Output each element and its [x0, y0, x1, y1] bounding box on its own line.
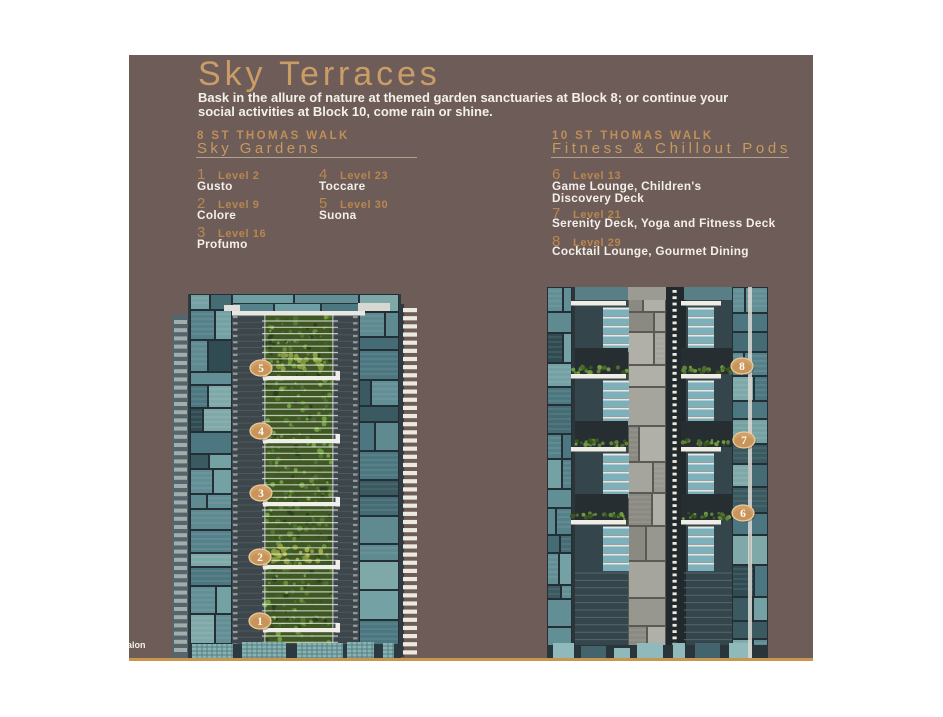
svg-text:8: 8	[739, 361, 745, 373]
svg-text:7: 7	[741, 435, 747, 447]
svg-text:2: 2	[257, 552, 263, 564]
svg-text:1: 1	[257, 616, 263, 628]
svg-text:4: 4	[258, 426, 264, 438]
svg-text:5: 5	[258, 363, 264, 375]
svg-text:6: 6	[740, 508, 746, 520]
svg-text:3: 3	[258, 488, 264, 500]
